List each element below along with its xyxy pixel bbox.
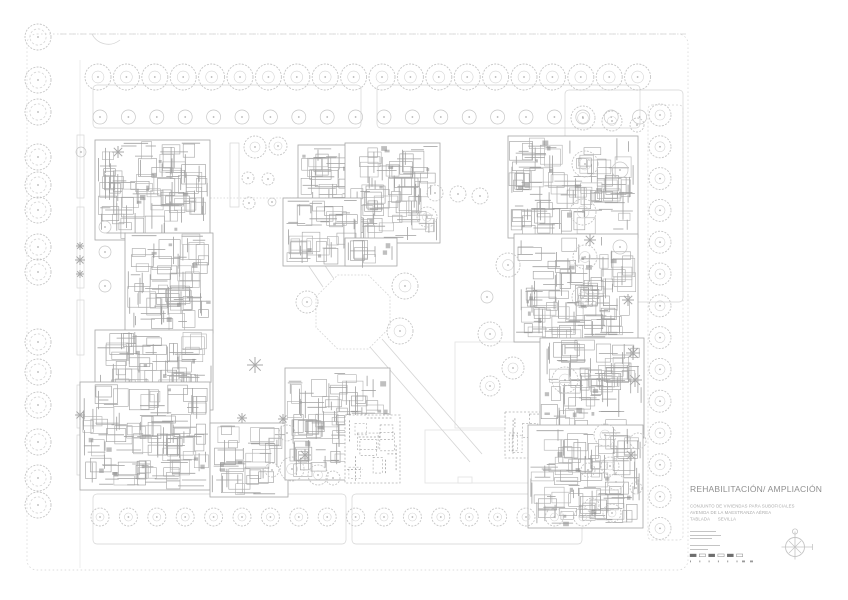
stair-core — [379, 186, 382, 189]
tree-trunk-dot — [468, 516, 470, 518]
tree-icon — [269, 137, 287, 155]
conifer-tree-icon — [626, 346, 640, 360]
stair-core — [144, 364, 147, 367]
planting-bed — [93, 494, 346, 544]
building-block — [95, 140, 210, 240]
tree-trunk-dot — [609, 465, 611, 467]
tree-icon — [296, 291, 318, 313]
tree-trunk-dot — [659, 496, 661, 498]
tree-icon — [76, 147, 86, 157]
conifer-tree-icon — [278, 414, 288, 424]
tree-icon — [178, 110, 192, 124]
conifer-tree-icon — [76, 270, 84, 278]
stair-core — [573, 413, 577, 418]
stair-core — [518, 186, 524, 189]
building-block — [508, 136, 638, 238]
stair-core — [169, 243, 173, 246]
tree-icon — [227, 64, 253, 90]
tree-icon — [511, 64, 537, 90]
tree-trunk-dot — [355, 516, 357, 518]
tree-trunk-dot — [552, 76, 554, 78]
fine-print-line — [690, 545, 720, 546]
stair-core — [174, 228, 177, 231]
stair-core — [538, 318, 541, 323]
drawing-title: REHABILITACIÓN/ AMPLIACIÓN — [690, 484, 840, 494]
stair-core — [525, 183, 530, 188]
tree-trunk-dot — [37, 36, 39, 38]
stair-core — [163, 374, 167, 378]
tree-trunk-dot — [495, 76, 497, 78]
tree-icon — [262, 173, 274, 185]
tree-icon — [142, 64, 168, 90]
blueprint-page: REHABILITACIÓN/ AMPLIACIÓN CONJUNTO DE V… — [0, 0, 848, 600]
tree-icon — [462, 110, 476, 124]
tree-trunk-dot — [627, 299, 629, 301]
tree-trunk-dot — [468, 116, 470, 118]
tree-icon — [320, 110, 334, 124]
tree-icon — [85, 64, 111, 90]
tree-icon — [649, 199, 671, 221]
conifer-tree-icon — [628, 373, 642, 387]
tree-trunk-dot — [286, 432, 288, 434]
stair-core — [388, 166, 393, 169]
tree-trunk-dot — [525, 516, 527, 518]
stair-core — [575, 184, 581, 188]
tree-icon — [649, 263, 671, 285]
stair-core — [194, 457, 198, 460]
scale-tick — [742, 561, 745, 563]
stair-core — [318, 426, 324, 430]
tree-icon — [235, 110, 249, 124]
tree-trunk-dot — [608, 76, 610, 78]
panel-notch — [458, 477, 472, 483]
stair-core — [206, 301, 210, 304]
tree-trunk-dot — [659, 146, 661, 148]
building-block — [80, 382, 210, 490]
conifer-tree-icon — [237, 413, 247, 423]
tree-icon — [242, 172, 254, 184]
hedge-strip — [77, 135, 84, 198]
tree-trunk-dot — [659, 400, 661, 402]
stair-core — [106, 447, 111, 451]
tree-icon — [571, 106, 595, 130]
tree-trunk-dot — [434, 192, 436, 194]
conifer-tree-icon — [76, 242, 84, 250]
tree-trunk-dot — [632, 352, 634, 354]
tree-icon — [207, 110, 221, 124]
tree-icon — [630, 118, 644, 132]
tree-icon — [25, 172, 51, 198]
tree-trunk-dot — [99, 516, 101, 518]
tree-trunk-dot — [582, 117, 584, 119]
tree-trunk-dot — [104, 285, 106, 287]
tree-icon — [284, 64, 310, 90]
tree-trunk-dot — [554, 116, 556, 118]
tree-icon — [450, 186, 466, 202]
tree-trunk-dot — [239, 76, 241, 78]
tree-trunk-dot — [37, 441, 39, 443]
tree-trunk-dot — [127, 116, 129, 118]
stair-core — [384, 410, 388, 415]
tree-trunk-dot — [659, 114, 661, 116]
tree-icon — [649, 517, 671, 539]
stair-core — [89, 438, 94, 442]
tree-icon — [539, 64, 565, 90]
tree-trunk-dot — [241, 116, 243, 118]
tree-icon — [460, 508, 478, 526]
tree-trunk-dot — [332, 477, 334, 479]
tree-trunk-dot — [486, 296, 488, 298]
tree-icon — [261, 508, 279, 526]
tree-trunk-dot — [254, 146, 256, 148]
tree-trunk-dot — [241, 516, 243, 518]
tree-icon — [244, 136, 266, 158]
tree-icon — [148, 508, 166, 526]
tree-trunk-dot — [591, 504, 593, 506]
tree-icon — [91, 508, 109, 526]
tree-trunk-dot — [659, 432, 661, 434]
tree-icon — [93, 110, 107, 124]
tree-trunk-dot — [582, 516, 584, 518]
scale-bar — [690, 554, 753, 562]
tree-icon — [649, 295, 671, 317]
stair-core — [569, 266, 574, 270]
tree-trunk-dot — [326, 516, 328, 518]
tree-icon — [454, 64, 480, 90]
tree-trunk-dot — [639, 116, 641, 118]
tree-trunk-dot — [117, 151, 119, 153]
conifer-tree-icon — [247, 357, 263, 373]
tree-trunk-dot — [457, 193, 459, 195]
stair-core — [177, 303, 181, 307]
tree-trunk-dot — [271, 469, 273, 471]
tree-trunk-dot — [248, 202, 250, 204]
tree-trunk-dot — [604, 434, 606, 436]
stair-core — [137, 201, 141, 204]
stair-core — [238, 461, 242, 464]
tree-trunk-dot — [507, 264, 509, 266]
tree-trunk-dot — [659, 210, 661, 212]
tree-icon — [25, 67, 51, 93]
tree-trunk-dot — [182, 76, 184, 78]
scale-tick — [709, 561, 710, 563]
tree-trunk-dot — [37, 341, 39, 343]
tree-trunk-dot — [306, 301, 308, 303]
project-line-3: TABLADA SEVILLA — [690, 516, 840, 523]
scale-bar-segment — [699, 554, 705, 557]
tree-trunk-dot — [271, 201, 273, 203]
stair-core — [526, 301, 529, 304]
conifer-tree-icon — [75, 410, 85, 420]
tree-icon — [633, 110, 647, 124]
tree-icon — [292, 110, 306, 124]
scale-bar-segment — [709, 554, 715, 557]
tree-trunk-dot — [619, 246, 621, 248]
tree-trunk-dot — [659, 178, 661, 180]
tree-trunk-dot — [156, 516, 158, 518]
scale-tick — [750, 561, 753, 563]
tree-trunk-dot — [659, 305, 661, 307]
stair-core — [307, 248, 311, 253]
tree-icon — [25, 197, 51, 223]
tree-icon — [25, 99, 51, 125]
tree-trunk-dot — [580, 76, 582, 78]
tree-trunk-dot — [410, 76, 412, 78]
tree-icon — [25, 144, 51, 170]
stair-core — [549, 169, 552, 172]
tree-trunk-dot — [79, 273, 81, 275]
tree-icon — [233, 508, 251, 526]
fine-print-line — [690, 538, 712, 539]
tree-icon — [369, 64, 395, 90]
stair-core — [146, 186, 149, 191]
tree-icon — [318, 508, 336, 526]
tree-icon — [649, 422, 671, 444]
tree-trunk-dot — [440, 116, 442, 118]
hedge-strip — [230, 143, 239, 207]
stair-core — [611, 259, 617, 263]
tree-icon — [472, 188, 488, 204]
scale-tick — [699, 561, 700, 563]
tree-trunk-dot — [659, 464, 661, 466]
tree-icon — [347, 508, 365, 526]
tree-icon — [649, 454, 671, 476]
tree-trunk-dot — [126, 76, 128, 78]
tree-icon — [255, 64, 281, 90]
stair-core — [159, 160, 162, 163]
stair-core — [318, 254, 321, 257]
tree-icon — [25, 465, 51, 491]
tree-icon — [25, 392, 51, 418]
tree-trunk-dot — [636, 124, 638, 126]
building-outline — [345, 238, 397, 266]
tree-trunk-dot — [584, 256, 586, 258]
stair-core — [113, 472, 118, 477]
tree-icon — [649, 168, 671, 190]
tree-trunk-dot — [497, 516, 499, 518]
tree-trunk-dot — [489, 333, 491, 335]
tree-trunk-dot — [79, 414, 81, 416]
tree-trunk-dot — [184, 516, 186, 518]
stair-core — [220, 462, 224, 467]
tree-icon — [434, 110, 448, 124]
stair-core — [529, 296, 533, 300]
tree-trunk-dot — [254, 364, 256, 366]
tree-trunk-dot — [659, 241, 661, 243]
stair-core — [383, 250, 387, 254]
tree-trunk-dot — [611, 512, 613, 514]
tree-icon — [519, 110, 533, 124]
stair-core — [567, 213, 572, 218]
tree-trunk-dot — [399, 330, 401, 332]
tree-icon — [312, 64, 338, 90]
tree-trunk-dot — [156, 116, 158, 118]
tree-trunk-dot — [637, 76, 639, 78]
road-curve — [92, 34, 120, 44]
stair-core — [593, 389, 598, 393]
tree-icon — [25, 429, 51, 455]
tree-trunk-dot — [268, 76, 270, 78]
scale-bar-segment — [727, 554, 733, 557]
tree-trunk-dot — [79, 245, 81, 247]
tree-icon — [649, 327, 671, 349]
conifer-tree-icon — [622, 294, 634, 306]
tree-trunk-dot — [324, 76, 326, 78]
tree-trunk-dot — [247, 177, 249, 179]
tree-trunk-dot — [466, 76, 468, 78]
tree-trunk-dot — [267, 178, 269, 180]
tree-icon — [121, 110, 135, 124]
building-block — [345, 238, 397, 268]
tree-trunk-dot — [37, 477, 39, 479]
stair-core — [200, 465, 204, 470]
stair-core — [183, 192, 188, 195]
tree-trunk-dot — [104, 226, 106, 228]
tree-icon — [547, 110, 561, 124]
stair-core — [380, 381, 386, 386]
tree-trunk-dot — [270, 116, 272, 118]
stair-core — [576, 468, 580, 472]
scale-tick — [737, 561, 738, 563]
tree-icon — [568, 64, 594, 90]
tree-trunk-dot — [298, 516, 300, 518]
stair-core — [542, 141, 548, 146]
tree-icon — [176, 508, 194, 526]
stair-core — [426, 168, 429, 171]
tree-icon — [405, 110, 419, 124]
tree-trunk-dot — [37, 184, 39, 186]
planting-bed — [377, 85, 640, 128]
tree-icon — [649, 486, 671, 508]
stair-core — [192, 359, 195, 364]
tree-trunk-dot — [79, 259, 81, 261]
stair-core — [528, 312, 531, 316]
tree-trunk-dot — [213, 516, 215, 518]
tree-trunk-dot — [304, 454, 306, 456]
scale-bar-segment — [718, 554, 724, 557]
stair-core — [140, 195, 146, 200]
tree-trunk-dot — [282, 418, 284, 420]
tree-icon — [205, 508, 223, 526]
stair-core — [545, 392, 549, 396]
stair-core — [333, 223, 336, 226]
tree-icon — [596, 64, 622, 90]
tree-icon — [25, 259, 51, 285]
tree-trunk-dot — [489, 385, 491, 387]
tree-trunk-dot — [37, 271, 39, 273]
tree-icon — [99, 246, 111, 258]
tree-icon — [649, 104, 671, 126]
scale-tick — [690, 561, 691, 563]
conifer-tree-icon — [112, 146, 124, 158]
tree-trunk-dot — [637, 440, 639, 442]
tree-trunk-dot — [37, 111, 39, 113]
plaza-octagon — [316, 275, 390, 349]
tree-trunk-dot — [353, 76, 355, 78]
tree-trunk-dot — [564, 379, 566, 381]
stair-core — [302, 155, 305, 158]
tree-icon — [263, 110, 277, 124]
tree-trunk-dot — [270, 516, 272, 518]
tree-icon — [649, 231, 671, 253]
tree-trunk-dot — [37, 156, 39, 158]
tree-icon — [25, 359, 51, 385]
tree-trunk-dot — [659, 337, 661, 339]
tree-trunk-dot — [127, 516, 129, 518]
tree-trunk-dot — [383, 516, 385, 518]
tree-icon — [25, 24, 51, 50]
fine-print-line — [690, 549, 708, 550]
stair-core — [99, 469, 104, 473]
stair-core — [563, 522, 569, 527]
tree-icon — [649, 358, 671, 380]
tree-icon — [243, 197, 255, 209]
tree-trunk-dot — [611, 120, 613, 122]
tree-trunk-dot — [296, 76, 298, 78]
tree-trunk-dot — [523, 76, 525, 78]
tree-trunk-dot — [184, 116, 186, 118]
tree-trunk-dot — [412, 516, 414, 518]
hedge-strip — [77, 300, 84, 355]
tree-icon — [119, 508, 137, 526]
stair-core — [136, 351, 140, 355]
tree-icon — [483, 64, 509, 90]
tree-trunk-dot — [554, 516, 556, 518]
tree-icon — [403, 508, 421, 526]
stair-core — [581, 257, 584, 260]
conifer-tree-icon — [299, 449, 311, 461]
tree-icon — [481, 291, 493, 303]
tree-trunk-dot — [291, 468, 293, 470]
tree-trunk-dot — [37, 79, 39, 81]
stair-core — [220, 468, 226, 471]
building-outline — [345, 415, 400, 483]
tree-trunk-dot — [241, 417, 243, 419]
tree-trunk-dot — [104, 251, 106, 253]
tree-trunk-dot — [659, 369, 661, 371]
scale-bar-segment — [737, 554, 743, 557]
planting-bed — [93, 85, 361, 128]
tree-trunk-dot — [619, 169, 621, 171]
tree-trunk-dot — [512, 367, 514, 369]
fine-print-line — [690, 531, 716, 532]
tree-icon — [349, 110, 363, 124]
tree-icon — [491, 110, 505, 124]
tree-trunk-dot — [659, 273, 661, 275]
tree-trunk-dot — [630, 454, 632, 456]
tree-trunk-dot — [584, 163, 586, 165]
tree-trunk-dot — [154, 76, 156, 78]
tree-icon — [25, 234, 51, 260]
stair-core — [377, 410, 381, 413]
stair-core — [167, 317, 172, 322]
tree-trunk-dot — [438, 76, 440, 78]
tree-trunk-dot — [298, 116, 300, 118]
tree-icon — [99, 280, 111, 292]
stair-core — [547, 146, 550, 151]
tree-icon — [268, 198, 276, 206]
conifer-tree-icon — [75, 255, 85, 265]
tree-trunk-dot — [525, 116, 527, 118]
title-block: REHABILITACIÓN/ AMPLIACIÓN CONJUNTO DE V… — [690, 484, 840, 542]
tree-trunk-dot — [383, 116, 385, 118]
stair-core — [386, 243, 391, 248]
stair-core — [596, 188, 602, 191]
building-block — [125, 233, 213, 333]
tree-icon — [377, 110, 391, 124]
tree-icon — [649, 136, 671, 158]
tree-trunk-dot — [211, 76, 213, 78]
